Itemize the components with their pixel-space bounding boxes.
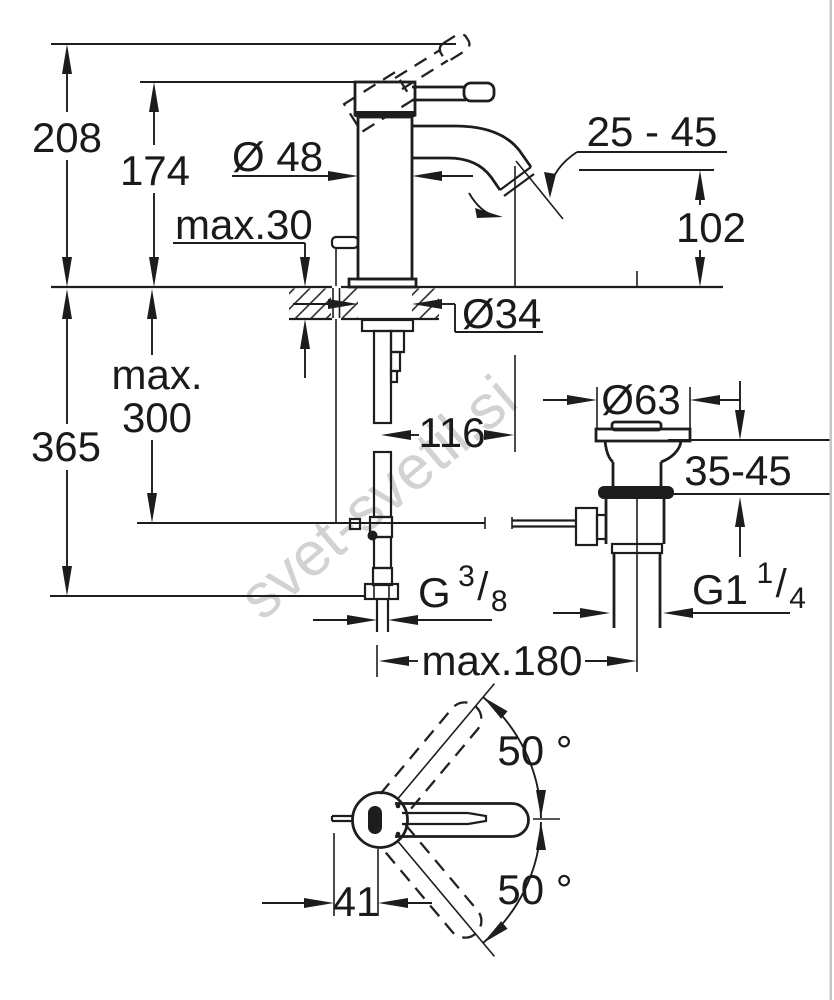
dim-spout-height: 102	[676, 204, 746, 251]
waste-seal-ring	[598, 486, 674, 499]
waste-knurled-knob	[576, 508, 597, 545]
technical-drawing-page: svet-svetil.si	[0, 0, 834, 1000]
dim-body-height: 174	[120, 147, 190, 194]
hose-ferrule	[373, 568, 392, 585]
dim-install-height: 365	[31, 423, 101, 470]
faucet-dimension-drawing: svet-svetil.si	[0, 0, 834, 1000]
rod-pivot-dot	[368, 531, 378, 541]
dim-hose-max-word: max.	[111, 351, 202, 398]
faucet-top-view: 50 ° 50 ° 41	[262, 684, 573, 957]
mounting-washer	[362, 320, 413, 331]
dim-waste-thread: G1 1 / 4	[692, 557, 806, 615]
g38-nut	[365, 584, 398, 599]
faucet-body	[358, 117, 412, 279]
lever-slot	[368, 806, 382, 834]
supply-hose	[374, 331, 391, 423]
dim-waste-flange-diameter: Ø63	[601, 376, 680, 423]
dim-swivel-down: 50 °	[497, 866, 572, 913]
dim-swivel-up: 50 °	[497, 727, 572, 774]
dim-deck-thickness: max.30	[175, 201, 313, 248]
dim-aerator-angle: 25 - 45	[587, 108, 718, 155]
page-edge-line	[830, 0, 833, 1000]
waste-neck	[605, 441, 613, 462]
dim-total-height: 208	[32, 114, 102, 161]
dim-hose-to-outlet: 116	[419, 409, 486, 456]
dimensions-front: 208 174 Ø 48 max.30 25 - 45	[31, 44, 831, 684]
rod-guide-pipe	[391, 331, 404, 352]
lever-handle	[412, 83, 494, 101]
dim-hose-max-value: 300	[122, 394, 192, 441]
pull-rod-plan	[332, 816, 353, 821]
dim-rod-to-waste: max.180	[421, 637, 582, 684]
base-flange	[349, 279, 416, 287]
dim-supply-thread: G 3 / 8	[418, 560, 508, 618]
dim-hole-diameter: Ø34	[462, 290, 541, 337]
dim-body-diameter: Ø 48	[232, 133, 323, 180]
handle-plan	[395, 804, 529, 837]
dim-handle-offset: 41	[333, 878, 380, 925]
dim-waste-deck-range: 35-45	[684, 447, 791, 494]
